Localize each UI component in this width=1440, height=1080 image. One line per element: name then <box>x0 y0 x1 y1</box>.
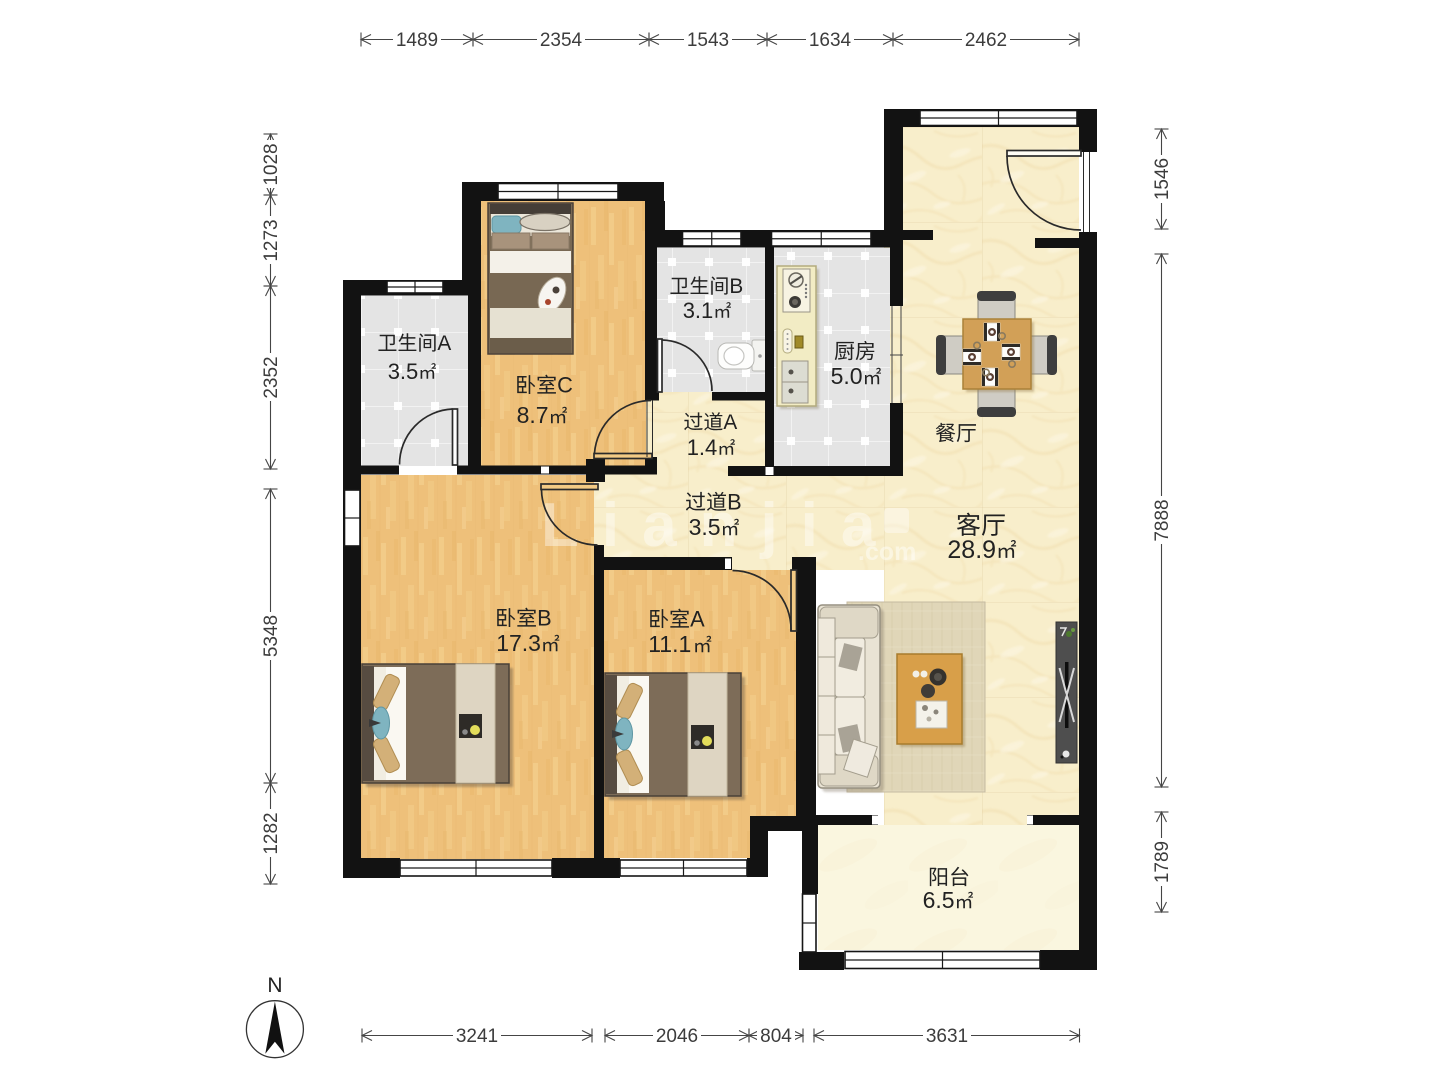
svg-text:1273: 1273 <box>261 219 282 261</box>
svg-text:1546: 1546 <box>1152 158 1173 200</box>
svg-text:B: B <box>729 275 743 298</box>
svg-text:N: N <box>267 974 282 997</box>
svg-text:6.5: 6.5 <box>923 887 955 913</box>
svg-text:1028: 1028 <box>261 143 282 185</box>
svg-text:B: B <box>727 490 742 515</box>
svg-text:8.7: 8.7 <box>517 402 549 428</box>
svg-text:3.5: 3.5 <box>388 359 419 384</box>
svg-text:5348: 5348 <box>261 615 282 657</box>
svg-text:3631: 3631 <box>926 1026 968 1047</box>
svg-text:5.0: 5.0 <box>831 363 863 389</box>
svg-text:2462: 2462 <box>965 30 1007 51</box>
svg-text:2352: 2352 <box>261 356 282 398</box>
svg-text:3.1: 3.1 <box>683 298 714 323</box>
svg-text:2046: 2046 <box>656 1026 698 1047</box>
svg-text:B: B <box>537 606 552 631</box>
svg-text:7888: 7888 <box>1152 499 1173 541</box>
svg-text:.com: .com <box>858 538 916 566</box>
svg-text:1543: 1543 <box>687 30 729 51</box>
svg-text:804: 804 <box>760 1026 792 1047</box>
svg-text:A: A <box>690 607 705 632</box>
svg-text:1789: 1789 <box>1152 841 1173 883</box>
svg-text:17.3: 17.3 <box>496 630 541 656</box>
svg-text:A: A <box>437 332 451 355</box>
svg-text:1634: 1634 <box>809 30 852 51</box>
svg-text:C: C <box>557 373 573 398</box>
svg-text:1489: 1489 <box>396 30 438 51</box>
svg-text:3.5: 3.5 <box>689 514 721 540</box>
svg-text:A: A <box>723 411 737 434</box>
svg-text:1.4: 1.4 <box>687 435 718 460</box>
svg-text:2354: 2354 <box>540 30 583 51</box>
svg-text:1282: 1282 <box>261 812 282 854</box>
svg-text:11.1: 11.1 <box>648 631 691 657</box>
svg-text:3241: 3241 <box>456 1026 498 1047</box>
svg-text:28.9: 28.9 <box>947 536 996 564</box>
